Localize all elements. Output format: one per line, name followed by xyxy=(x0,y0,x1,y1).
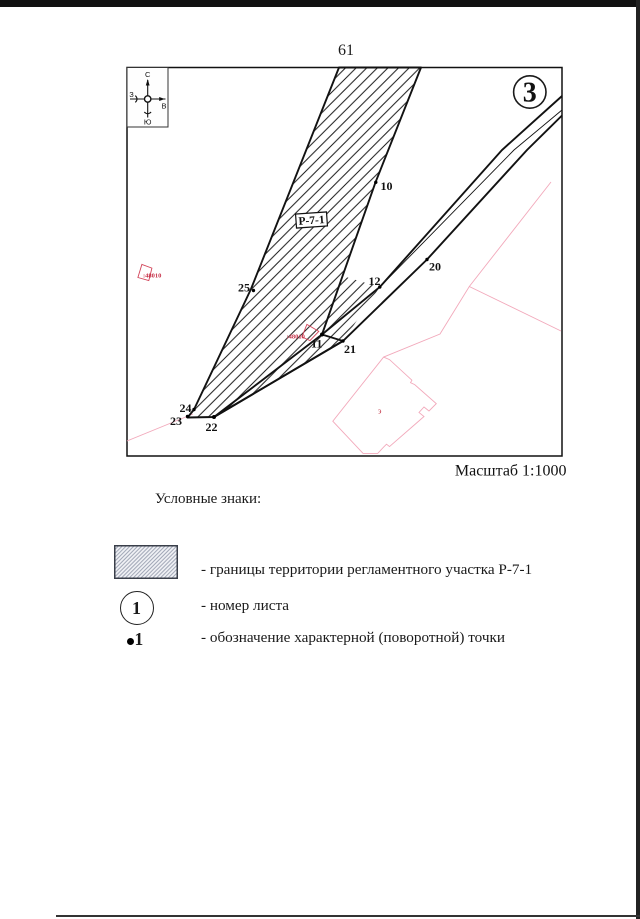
svg-text:Р-7-1: Р-7-1 xyxy=(298,214,325,228)
svg-text:12: 12 xyxy=(369,274,381,288)
svg-text:э: э xyxy=(378,407,382,416)
svg-text:25: 25 xyxy=(238,281,250,295)
svg-text:З: З xyxy=(129,90,134,99)
svg-text:11: 11 xyxy=(311,337,322,351)
svg-text::48010: :48010 xyxy=(143,273,161,280)
svg-text:Масштаб 1:1000: Масштаб 1:1000 xyxy=(455,463,567,480)
svg-text:3: 3 xyxy=(523,78,537,109)
svg-text:Ю: Ю xyxy=(144,118,152,127)
svg-text:23: 23 xyxy=(170,414,182,428)
svg-text:С: С xyxy=(145,70,151,79)
svg-text:24: 24 xyxy=(180,401,192,415)
svg-text:20: 20 xyxy=(429,260,441,274)
svg-text:В: В xyxy=(161,102,166,111)
svg-text:10: 10 xyxy=(381,179,393,193)
svg-text::48010: :48010 xyxy=(287,334,305,341)
svg-text:22: 22 xyxy=(206,420,218,434)
svg-text:21: 21 xyxy=(344,342,356,356)
